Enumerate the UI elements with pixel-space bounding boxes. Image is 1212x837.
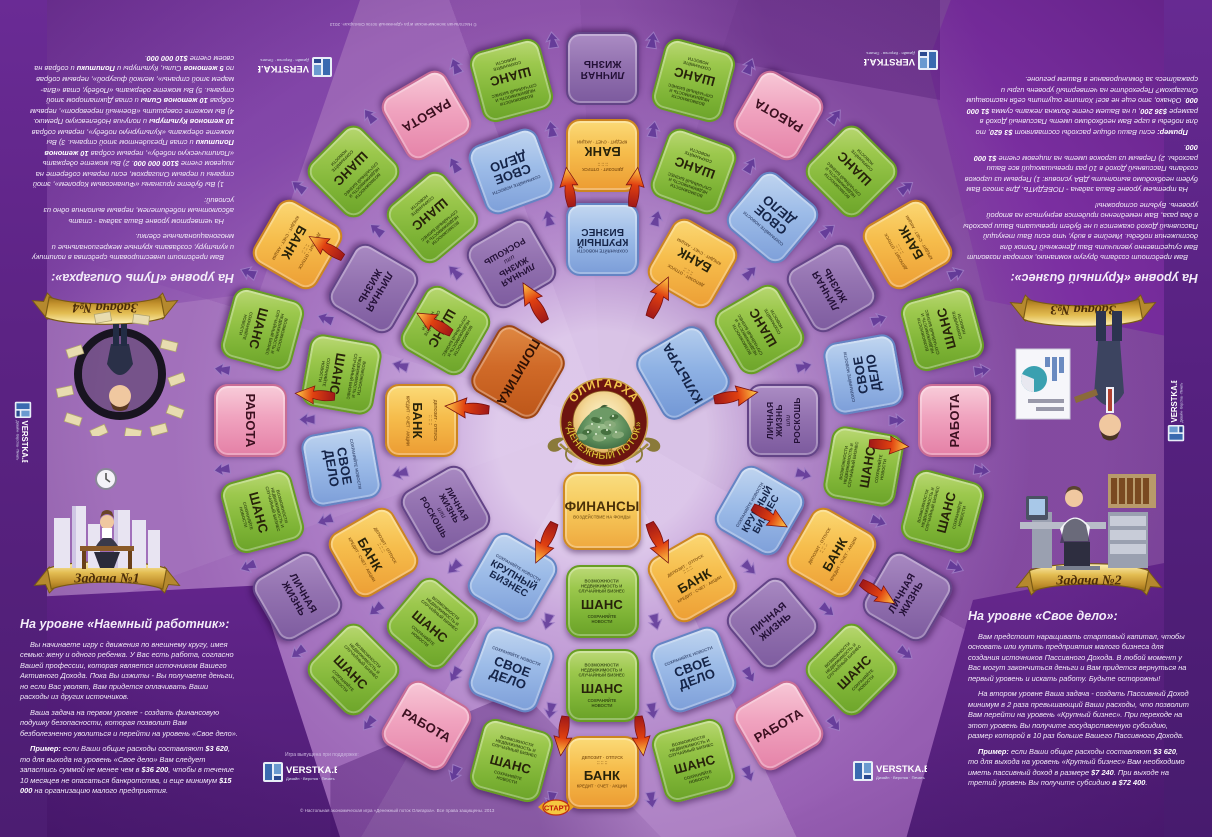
svg-text:Дизайн · Верстка · Печать: Дизайн · Верстка · Печать bbox=[15, 421, 19, 461]
svg-text:СТАРТ: СТАРТ bbox=[544, 804, 569, 813]
svg-text:VERSTKA.BY: VERSTKA.BY bbox=[258, 63, 309, 74]
svg-text:Дизайн · Верстка · Печать: Дизайн · Верстка · Печать bbox=[260, 58, 309, 63]
svg-text:VERSTKA.BY: VERSTKA.BY bbox=[876, 764, 927, 775]
svg-text:VERSTKA.BY: VERSTKA.BY bbox=[864, 56, 915, 67]
svg-text:Дизайн · Верстка · Печать: Дизайн · Верстка · Печать bbox=[876, 775, 925, 780]
svg-text:Дизайн · Верстка · Печать: Дизайн · Верстка · Печать bbox=[286, 776, 335, 781]
svg-text:Задача №2: Задача №2 bbox=[1055, 574, 1121, 589]
svg-text:VERSTKA.BY: VERSTKA.BY bbox=[1170, 381, 1179, 423]
svg-text:Задача №1: Задача №1 bbox=[73, 572, 139, 587]
svg-text:Дизайн · Верстка · Печать: Дизайн · Верстка · Печать bbox=[866, 51, 915, 56]
svg-text:VERSTKA.BY: VERSTKA.BY bbox=[20, 421, 29, 463]
svg-text:VERSTKA.BY: VERSTKA.BY bbox=[286, 765, 337, 776]
svg-text:Дизайн · Верстка · Печать: Дизайн · Верстка · Печать bbox=[1180, 382, 1184, 422]
